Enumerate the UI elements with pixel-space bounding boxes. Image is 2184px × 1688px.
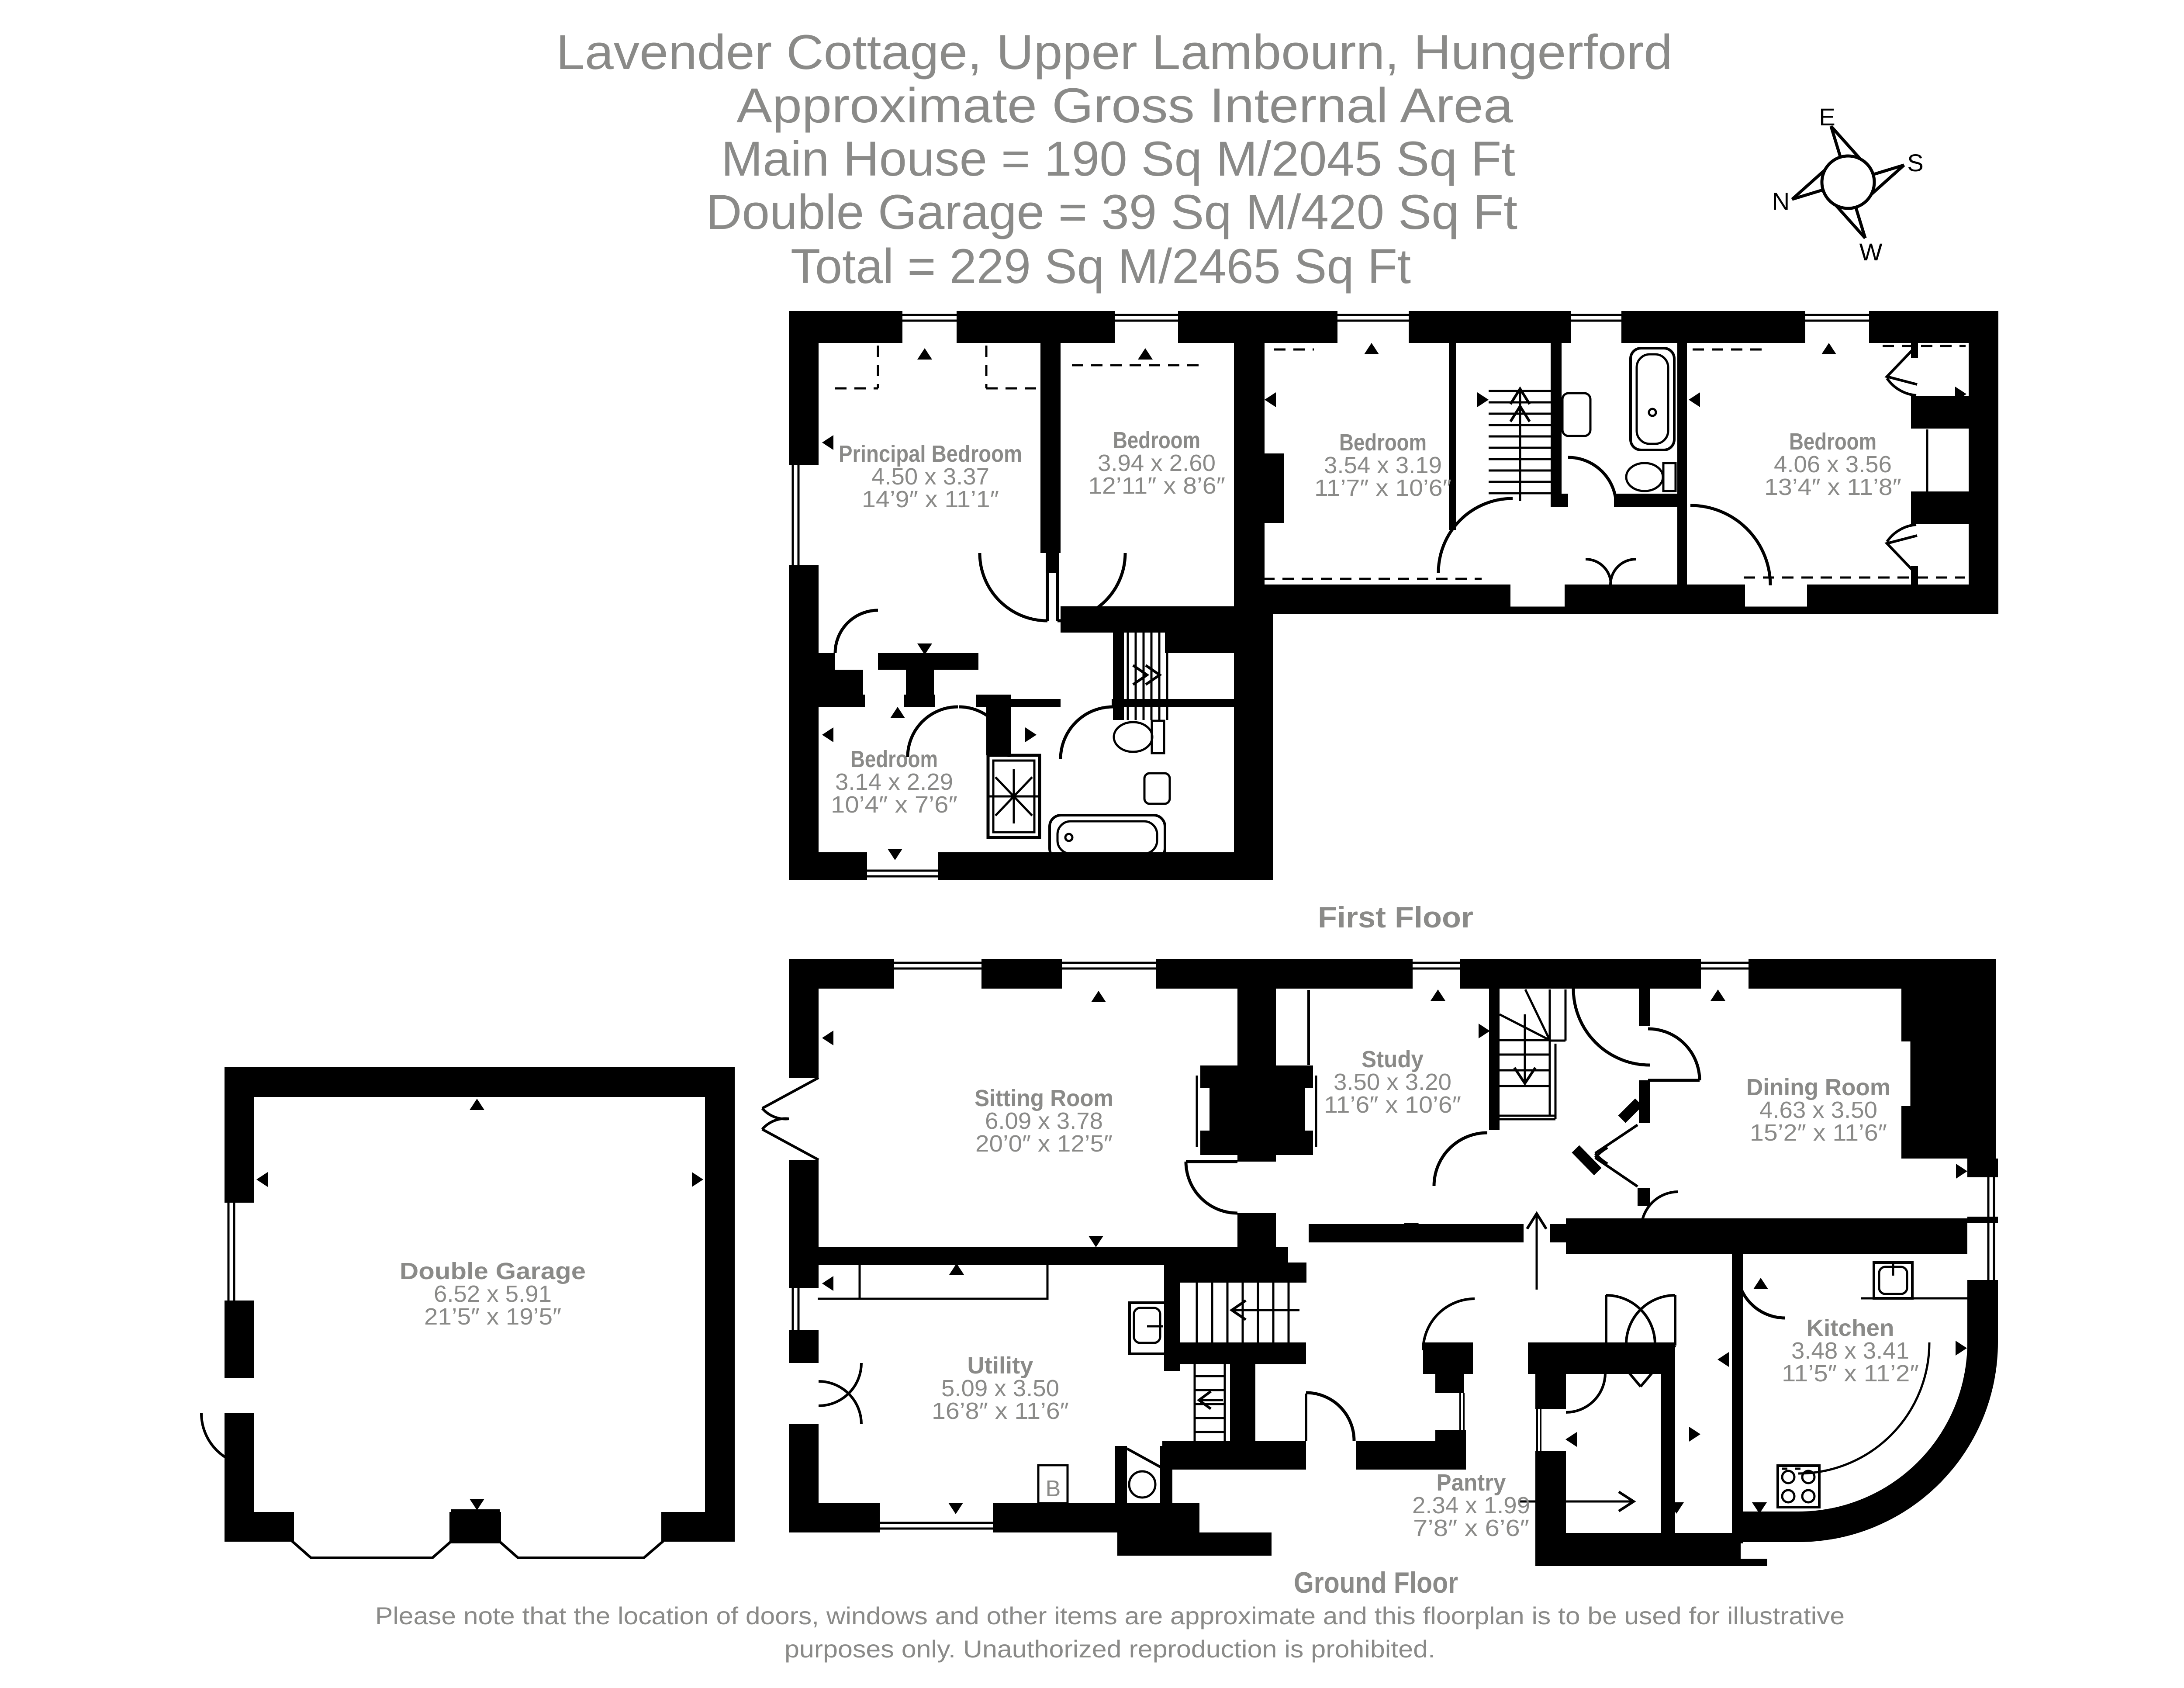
svg-text:B: B [1046, 1476, 1061, 1501]
svg-text:Bedroom: Bedroom [1339, 429, 1427, 456]
svg-text:4.63 x 3.50: 4.63 x 3.50 [1759, 1097, 1877, 1123]
svg-text:3.54 x 3.19: 3.54 x 3.19 [1324, 452, 1442, 478]
svg-text:Bedroom: Bedroom [1789, 429, 1876, 455]
svg-text:Total = 229 Sq M/2465 Sq Ft: Total = 229 Sq M/2465 Sq Ft [791, 239, 1411, 294]
svg-text:Main House = 190 Sq M/2045 Sq: Main House = 190 Sq M/2045 Sq Ft [721, 131, 1515, 186]
svg-text:Study: Study [1362, 1046, 1424, 1072]
svg-text:7’8″ x 6’6″: 7’8″ x 6’6″ [1413, 1515, 1529, 1541]
svg-text:11’7″ x 10’6″: 11’7″ x 10’6″ [1314, 475, 1451, 501]
svg-text:3.50 x 3.20: 3.50 x 3.20 [1334, 1069, 1451, 1095]
svg-text:11’5″ x 11’2″: 11’5″ x 11’2″ [1782, 1360, 1919, 1387]
svg-text:16’8″ x 11’6″: 16’8″ x 11’6″ [932, 1398, 1069, 1424]
svg-text:3.48 x 3.41: 3.48 x 3.41 [1791, 1338, 1909, 1364]
svg-text:Pantry: Pantry [1437, 1470, 1506, 1496]
svg-text:6.09 x 3.78: 6.09 x 3.78 [985, 1108, 1103, 1134]
svg-text:Utility: Utility [968, 1352, 1033, 1379]
svg-text:Lavender Cottage, Upper Lambou: Lavender Cottage, Upper Lambourn, Hunger… [556, 25, 1673, 80]
svg-text:Bedroom: Bedroom [850, 746, 938, 772]
svg-text:N: N [1772, 187, 1790, 215]
svg-text:Dining Room: Dining Room [1746, 1074, 1890, 1100]
svg-text:Double Garage = 39 Sq M/420 Sq: Double Garage = 39 Sq M/420 Sq Ft [706, 185, 1517, 239]
svg-text:Approximate Gross Internal Are: Approximate Gross Internal Area [736, 78, 1514, 133]
svg-text:3.14 x 2.29: 3.14 x 2.29 [835, 769, 953, 795]
svg-text:3.94 x 2.60: 3.94 x 2.60 [1098, 450, 1216, 476]
svg-text:2.34 x 1.99: 2.34 x 1.99 [1412, 1492, 1530, 1519]
svg-text:10’4″ x 7’6″: 10’4″ x 7’6″ [831, 792, 957, 818]
svg-text:4.06 x 3.56: 4.06 x 3.56 [1774, 451, 1892, 477]
svg-text:Please note that the location: Please note that the location of doors, … [375, 1602, 1845, 1629]
svg-text:12’11″ x 8’6″: 12’11″ x 8’6″ [1088, 473, 1225, 499]
svg-text:purposes only. Unauthorized re: purposes only. Unauthorized reproduction… [784, 1635, 1435, 1663]
svg-text:20’0″ x 12’5″: 20’0″ x 12’5″ [975, 1131, 1113, 1157]
svg-text:11’6″ x 10’6″: 11’6″ x 10’6″ [1324, 1092, 1461, 1118]
svg-text:14’9″ x 11’1″: 14’9″ x 11’1″ [862, 486, 999, 512]
svg-text:Double Garage: Double Garage [400, 1258, 586, 1284]
svg-text:6.52 x 5.91: 6.52 x 5.91 [434, 1281, 552, 1307]
svg-text:Sitting Room: Sitting Room [975, 1085, 1113, 1111]
svg-text:Kitchen: Kitchen [1807, 1315, 1894, 1341]
svg-text:First Floor: First Floor [1318, 901, 1473, 934]
svg-text:15’2″ x 11’6″: 15’2″ x 11’6″ [1750, 1120, 1887, 1146]
svg-text:21’5″ x 19’5″: 21’5″ x 19’5″ [424, 1304, 561, 1330]
svg-text:E: E [1819, 103, 1835, 131]
svg-text:W: W [1859, 238, 1883, 266]
svg-text:Bedroom: Bedroom [1113, 427, 1200, 453]
svg-text:S: S [1907, 149, 1923, 176]
svg-text:13’4″ x 11’8″: 13’4″ x 11’8″ [1764, 474, 1901, 500]
svg-text:Ground Floor: Ground Floor [1294, 1566, 1458, 1599]
svg-text:4.50 x 3.37: 4.50 x 3.37 [871, 464, 989, 490]
svg-text:5.09 x 3.50: 5.09 x 3.50 [941, 1375, 1059, 1401]
svg-text:Principal Bedroom: Principal Bedroom [839, 441, 1022, 467]
